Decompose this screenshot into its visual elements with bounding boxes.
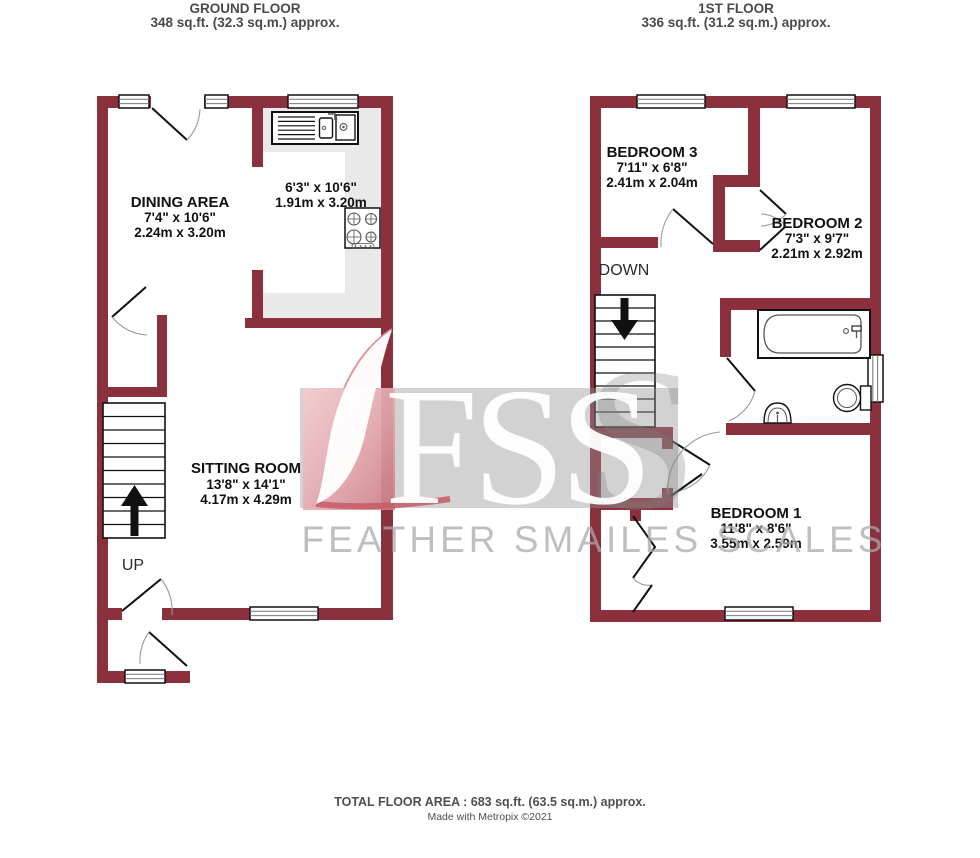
- first-floor-title: 1ST FLOOR: [698, 1, 774, 16]
- kitchen-sink: [272, 112, 358, 144]
- watermark: S FSS FEATHER SMAILES SCALES: [300, 326, 886, 560]
- staircase-up: [103, 403, 165, 538]
- up-label: UP: [122, 557, 144, 574]
- total-floor-area: TOTAL FLOOR AREA : 683 sq.ft. (63.5 sq.m…: [334, 795, 646, 809]
- ground-floor-title: GROUND FLOOR: [190, 1, 301, 16]
- first-floor-area: 336 sq.ft. (31.2 sq.m.) approx.: [641, 15, 830, 30]
- dining-name: DINING AREA: [131, 194, 230, 211]
- watermark-company-name: FEATHER SMAILES SCALES: [302, 519, 887, 560]
- window: [637, 95, 705, 108]
- bedroom2-metric: 2.21m x 2.92m: [771, 246, 863, 261]
- bedroom3-imperial: 7'11" x 6'8": [616, 160, 687, 175]
- down-label: DOWN: [599, 262, 650, 279]
- ground-floor-area: 348 sq.ft. (32.3 sq.m.) approx.: [150, 15, 339, 30]
- sitting-room-name: SITTING ROOM: [191, 460, 301, 477]
- footer: TOTAL FLOOR AREA : 683 sq.ft. (63.5 sq.m…: [334, 795, 646, 823]
- bedroom3-metric: 2.41m x 2.04m: [606, 175, 698, 190]
- window: [725, 607, 793, 620]
- dining-imperial: 7'4" x 10'6": [144, 210, 216, 225]
- floorplan-canvas: GROUND FLOOR 348 sq.ft. (32.3 sq.m.) app…: [0, 0, 980, 858]
- credit-line: Made with Metropix ©2021: [427, 811, 552, 823]
- window: [288, 95, 358, 108]
- door: [140, 632, 187, 666]
- sitting-room-metric: 4.17m x 4.29m: [200, 492, 292, 507]
- watermark-initials: FSS: [385, 354, 647, 540]
- window: [125, 670, 165, 683]
- bathtub: [758, 310, 870, 358]
- floorplan-page: GROUND FLOOR 348 sq.ft. (32.3 sq.m.) app…: [0, 0, 980, 858]
- ground-floor-plan: GROUND FLOOR 348 sq.ft. (32.3 sq.m.) app…: [97, 1, 393, 683]
- kitchen-metric: 1.91m x 3.20m: [275, 195, 367, 210]
- basin: [764, 403, 791, 423]
- dining-metric: 2.24m x 3.20m: [134, 225, 226, 240]
- sitting-room-imperial: 13'8" x 14'1": [206, 477, 285, 492]
- bedroom2-imperial: 7'3" x 9'7": [785, 231, 849, 246]
- kitchen-imperial: 6'3" x 10'6": [285, 180, 357, 195]
- toilet: [834, 385, 872, 412]
- door: [661, 209, 713, 247]
- bedroom2-name: BEDROOM 2: [772, 215, 863, 232]
- door: [152, 108, 200, 140]
- bedroom3-name: BEDROOM 3: [607, 144, 698, 161]
- hob: [345, 208, 380, 249]
- window: [205, 95, 228, 108]
- window: [787, 95, 855, 108]
- window: [250, 607, 318, 620]
- door: [727, 358, 755, 421]
- window: [119, 95, 149, 108]
- door: [112, 287, 147, 335]
